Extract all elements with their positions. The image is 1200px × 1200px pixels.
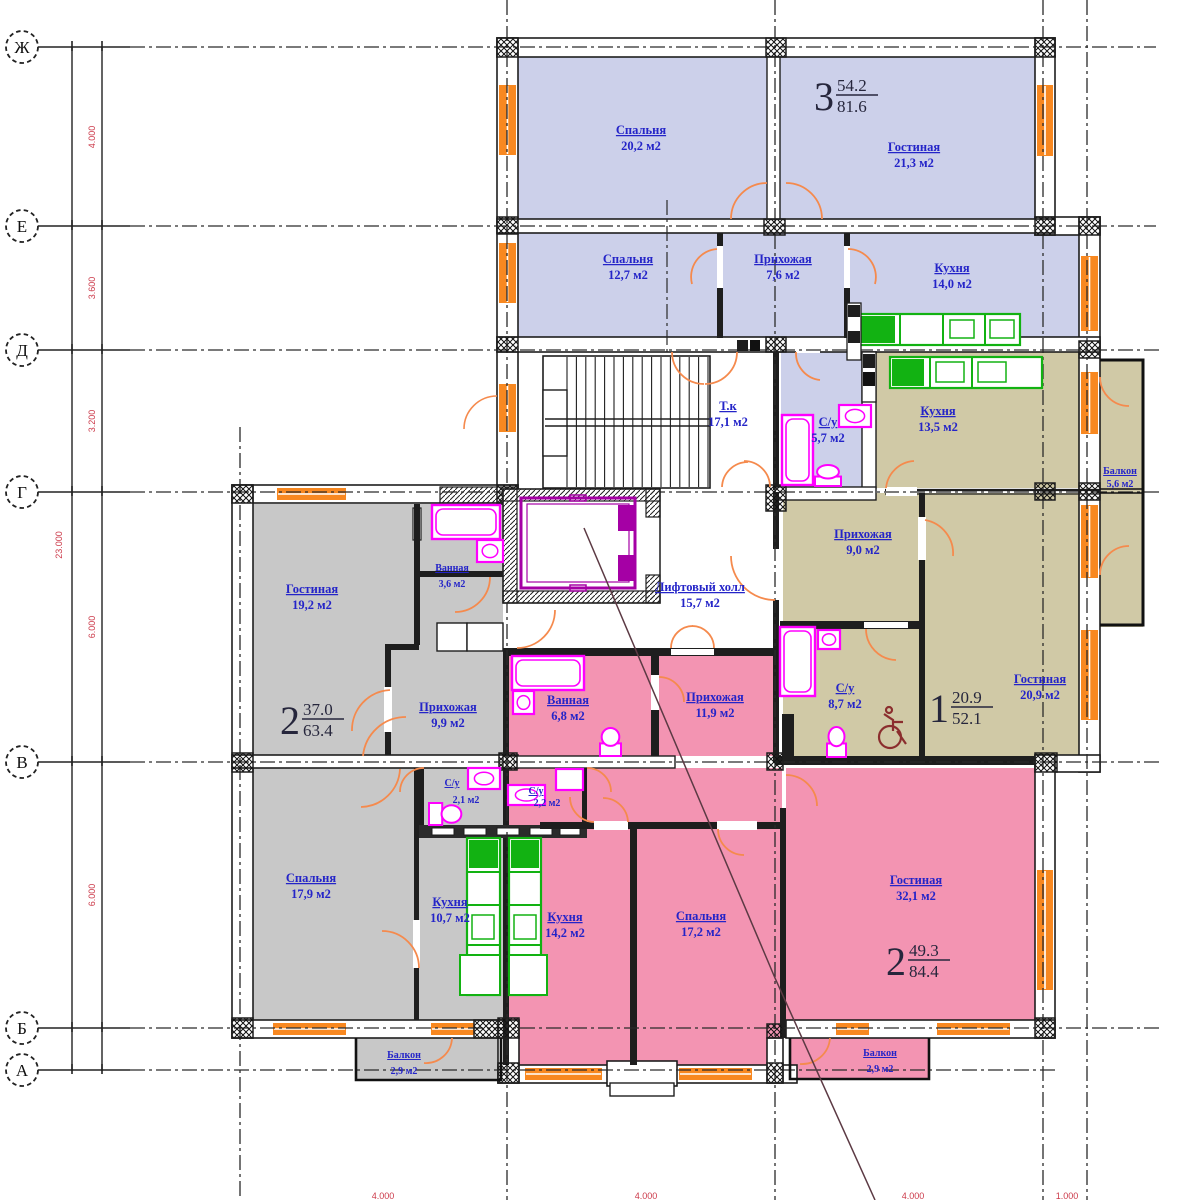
svg-text:2,2 м2: 2,2 м2: [534, 798, 561, 809]
svg-text:Лифтовый холл: Лифтовый холл: [655, 580, 745, 594]
svg-text:А: А: [16, 1061, 29, 1080]
svg-text:9,0 м2: 9,0 м2: [846, 543, 880, 557]
svg-text:23.000: 23.000: [54, 531, 64, 559]
svg-text:С/у: С/у: [836, 681, 856, 695]
svg-text:84.4: 84.4: [909, 962, 939, 981]
svg-text:63.4: 63.4: [303, 721, 333, 740]
svg-text:Кухня: Кухня: [920, 404, 955, 418]
svg-text:3: 3: [814, 74, 834, 119]
svg-text:21,3 м2: 21,3 м2: [894, 156, 934, 170]
svg-text:Кухня: Кухня: [934, 261, 969, 275]
svg-text:Спальня: Спальня: [286, 871, 336, 885]
svg-text:5,6 м2: 5,6 м2: [1107, 479, 1134, 490]
svg-text:6,8 м2: 6,8 м2: [551, 709, 585, 723]
svg-text:Спальня: Спальня: [676, 909, 726, 923]
svg-text:Прихожая: Прихожая: [754, 252, 812, 266]
svg-text:11,9 м2: 11,9 м2: [695, 706, 734, 720]
svg-text:6.000: 6.000: [87, 616, 97, 639]
svg-text:Кухня: Кухня: [432, 895, 467, 909]
svg-text:2,9 м2: 2,9 м2: [867, 1064, 894, 1075]
svg-text:1.000: 1.000: [1056, 1191, 1079, 1200]
svg-text:2,1 м2: 2,1 м2: [453, 795, 480, 806]
svg-text:Б: Б: [17, 1019, 27, 1038]
svg-text:Балкон: Балкон: [387, 1050, 421, 1061]
svg-text:3.600: 3.600: [87, 277, 97, 300]
svg-text:81.6: 81.6: [837, 97, 867, 116]
svg-text:10,7 м2: 10,7 м2: [430, 911, 470, 925]
svg-text:Прихожая: Прихожая: [834, 527, 892, 541]
svg-text:Балкон: Балкон: [863, 1048, 897, 1059]
svg-text:9,9 м2: 9,9 м2: [431, 716, 465, 730]
svg-text:49.3: 49.3: [909, 941, 939, 960]
svg-text:Спальня: Спальня: [603, 252, 653, 266]
svg-text:20.9: 20.9: [952, 688, 982, 707]
svg-text:Гостиная: Гостиная: [1014, 672, 1066, 686]
svg-text:5,7 м2: 5,7 м2: [811, 431, 845, 445]
svg-text:Балкон: Балкон: [1103, 466, 1137, 477]
svg-text:Гостиная: Гостиная: [890, 873, 942, 887]
svg-text:3.200: 3.200: [87, 410, 97, 433]
svg-text:С/у: С/у: [819, 415, 839, 429]
svg-text:13,5 м2: 13,5 м2: [918, 420, 958, 434]
svg-text:Г: Г: [17, 483, 27, 502]
svg-text:20,2 м2: 20,2 м2: [621, 139, 661, 153]
svg-text:7,6 м2: 7,6 м2: [766, 268, 800, 282]
svg-text:Спальня: Спальня: [616, 123, 666, 137]
svg-text:17,9 м2: 17,9 м2: [291, 887, 331, 901]
svg-text:Гостиная: Гостиная: [286, 582, 338, 596]
svg-text:54.2: 54.2: [837, 76, 867, 95]
svg-text:19,2 м2: 19,2 м2: [292, 598, 332, 612]
svg-text:6.000: 6.000: [87, 884, 97, 907]
svg-text:12,7 м2: 12,7 м2: [608, 268, 648, 282]
svg-text:8,7 м2: 8,7 м2: [828, 697, 862, 711]
svg-text:Т.к: Т.к: [719, 399, 737, 413]
svg-text:14,0 м2: 14,0 м2: [932, 277, 972, 291]
svg-text:2: 2: [280, 698, 300, 743]
svg-text:2,9 м2: 2,9 м2: [391, 1066, 418, 1077]
svg-text:1: 1: [929, 686, 949, 731]
svg-text:14,2 м2: 14,2 м2: [545, 926, 585, 940]
svg-text:3,6 м2: 3,6 м2: [439, 579, 466, 590]
svg-text:20,9 м2: 20,9 м2: [1020, 688, 1060, 702]
svg-text:32,1 м2: 32,1 м2: [896, 889, 936, 903]
svg-text:Ванная: Ванная: [547, 693, 589, 707]
svg-text:Ванная: Ванная: [435, 563, 469, 574]
svg-text:17,2 м2: 17,2 м2: [681, 925, 721, 939]
svg-text:4.000: 4.000: [372, 1191, 395, 1200]
svg-text:С/у: С/у: [529, 786, 544, 797]
svg-text:2: 2: [886, 939, 906, 984]
svg-text:15,7 м2: 15,7 м2: [680, 596, 720, 610]
svg-text:Кухня: Кухня: [547, 910, 582, 924]
svg-text:4.000: 4.000: [902, 1191, 925, 1200]
svg-text:Е: Е: [17, 217, 27, 236]
svg-text:37.0: 37.0: [303, 700, 333, 719]
svg-text:Ж: Ж: [14, 38, 30, 57]
svg-text:В: В: [16, 753, 27, 772]
svg-text:С/у: С/у: [445, 778, 460, 789]
svg-text:Гостиная: Гостиная: [888, 140, 940, 154]
svg-text:17,1 м2: 17,1 м2: [708, 415, 748, 429]
svg-text:4.000: 4.000: [87, 126, 97, 149]
svg-text:Прихожая: Прихожая: [686, 690, 744, 704]
svg-text:4.000: 4.000: [635, 1191, 658, 1200]
svg-text:52.1: 52.1: [952, 709, 982, 728]
svg-text:Прихожая: Прихожая: [419, 700, 477, 714]
svg-text:Д: Д: [16, 341, 28, 360]
